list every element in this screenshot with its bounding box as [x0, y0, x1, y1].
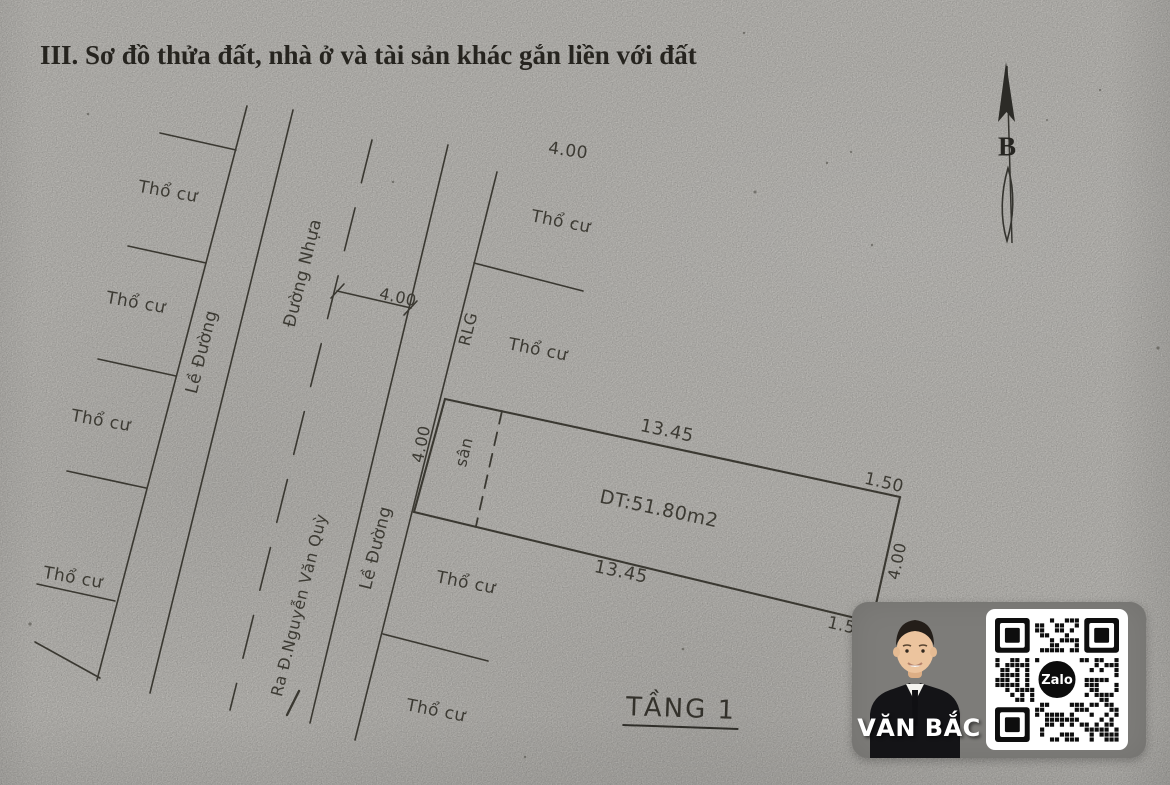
scanned-land-document: { "document": { "section_title": "III. S… [0, 0, 1170, 785]
qr-pattern: Zalo [986, 609, 1128, 750]
floor-label: TẦNG 1 [622, 692, 739, 730]
compass-north-label: B [998, 132, 1016, 163]
agent-contact-badge: VĂN BẮC Zalo [852, 602, 1146, 758]
section-title: III. Sơ đồ thửa đất, nhà ở và tài sản kh… [40, 40, 697, 71]
zalo-logo-label: Zalo [1041, 673, 1073, 688]
agent-name: VĂN BẮC [854, 714, 984, 742]
zalo-qr-code: Zalo [986, 609, 1128, 750]
